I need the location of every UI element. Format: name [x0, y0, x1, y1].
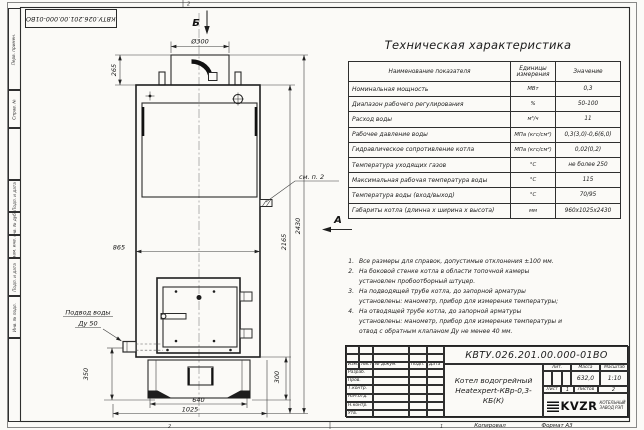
margin-field-empty-1	[8, 128, 21, 180]
drawing-sheet: 2 2 1 Б Ø300 265	[0, 0, 644, 430]
company-name: КОТЕЛЬНЫЙ ЗАВОД РЭП	[600, 401, 626, 411]
dim-text-chimney-dia: Ø300	[190, 38, 209, 46]
flue-elbow	[192, 62, 211, 79]
dim-body-width: 865	[113, 244, 260, 252]
furnace-door	[157, 278, 252, 353]
table-row: Максимальная рабочая температура воды°С1…	[349, 173, 621, 188]
spec-table: Наименование показателя Единицы измерени…	[348, 61, 621, 219]
list-item: 4.На отводящей трубе котла, до запорной …	[344, 307, 572, 337]
notes-list: 1.Все размеры для справок, допустимые от…	[344, 257, 572, 337]
sig-label-nkontr: Н.контр.	[346, 402, 373, 410]
sheets-value: 2	[598, 386, 629, 393]
dim-text-2430: 2430	[294, 218, 302, 235]
margin-field-inv-dubl: Инв. № дубл.	[8, 212, 21, 235]
lifting-lug-right	[235, 72, 241, 85]
dim-chimney-diameter: Ø300	[171, 38, 229, 54]
dim-base-height: 300	[252, 357, 291, 400]
foot-left	[148, 391, 172, 399]
view-label-b: Б	[192, 18, 200, 29]
list-item: 1.Все размеры для справок, допустимые от…	[344, 257, 572, 267]
top-stamp-box: КВТУ.026.201.00.000-01ВО	[25, 9, 117, 28]
table-row: Расход водым³/ч11	[349, 112, 621, 127]
table-row: Номинальная мощностьМВт0,3	[349, 82, 621, 97]
sig-label-nachotd: Нач.отд.	[346, 394, 373, 402]
chimney	[171, 55, 229, 85]
dim-overall-width: 1025	[113, 360, 267, 418]
margin-field-perv-primen: Перв. примен.	[8, 8, 21, 90]
dim-text-640: 640	[192, 396, 204, 404]
table-row: Диапазон рабочего регулирования%50-100	[349, 97, 621, 112]
list-item: 3.На подводящей трубе котла, до запорной…	[344, 287, 572, 307]
note-reference-label: см. п. 2	[299, 173, 324, 181]
spec-header-row: Наименование показателя Единицы измерени…	[349, 62, 621, 82]
table-row: Гидравлическое сопротивление котлаМПа (к…	[349, 142, 621, 157]
table-row: Рабочее давление водыМПа (кгс/см²)0,3(3,…	[349, 127, 621, 142]
table-row: Температура уходящих газов°Сне более 250	[349, 157, 621, 172]
foot-right	[227, 391, 251, 399]
boiler-body	[136, 72, 260, 357]
sig-label-prov: Пров.	[346, 377, 373, 385]
inlet-label-line2: Ду 50	[77, 320, 97, 328]
sig-label-tkontr: Т.контр.	[346, 385, 373, 393]
top-stamp-number: КВТУ.026.201.00.000-01ВО	[26, 15, 115, 23]
margin-field-vzam-inv: Взам. инв. №	[8, 235, 21, 258]
sig-label-utv: Утв.	[346, 410, 373, 418]
inlet-label-line1: Подвод воды	[65, 309, 110, 317]
dim-text-1025: 1025	[182, 406, 199, 414]
margin-field-podp-data-1: Подп. и дата	[8, 180, 21, 212]
spec-header-value: Значение	[556, 62, 621, 82]
door-hinge-bottom	[240, 329, 252, 338]
rev-header-izm: Изм.	[346, 362, 359, 369]
rev-header-list: Лист	[359, 362, 373, 369]
zone-number-bottom-right: 1	[440, 424, 443, 430]
spec-header-name: Наименование показателя	[349, 62, 511, 82]
dim-text-265: 265	[110, 64, 118, 76]
dim-text-2165: 2165	[280, 234, 288, 251]
lifting-lug-left	[159, 72, 165, 85]
footer-copied-label: Копировал	[460, 422, 520, 430]
table-row: Габариты котла (длинна х ширина х высота…	[349, 203, 621, 218]
sheets-label: Листов	[574, 386, 598, 393]
dim-chimney-height: 265	[110, 55, 171, 85]
sheet-value: 1	[561, 386, 574, 393]
spec-table-title: Техническая характеристика	[348, 38, 608, 52]
lit-label: Лит.	[543, 364, 571, 371]
door-peephole	[197, 295, 202, 300]
product-name: Котел водогрейный Heatexpert-КВр-0,3- КБ…	[444, 364, 543, 418]
kvzr-logo-icon	[547, 400, 559, 412]
rev-header-podp: Подп.	[409, 362, 427, 369]
zone-number-bottom-left: 2	[168, 424, 171, 430]
dim-body-height: 2165	[260, 85, 295, 414]
zone-number-top: 2	[187, 2, 190, 8]
kvzr-logo-text: KVZR	[561, 399, 598, 413]
dim-text-300: 300	[273, 371, 281, 383]
dim-text-865: 865	[113, 244, 125, 252]
sheet-label: Лист	[543, 386, 561, 393]
list-item: 2.На боковой стенке котла в области топо…	[344, 267, 572, 287]
doc-number: КВТУ.026.201.00.000-01ВО	[444, 346, 629, 364]
revision-table: Изм. Лист № докум. Подп. Дата Разраб. Пр…	[346, 346, 444, 418]
product-name-line1: Котел водогрейный	[455, 376, 533, 386]
rev-header-data: Дата	[427, 362, 444, 369]
dim-text-350: 350	[82, 368, 90, 380]
ash-opening	[188, 367, 213, 385]
upper-panel	[142, 103, 257, 197]
rev-header-dokum: № докум.	[373, 362, 409, 369]
margin-field-empty-2	[8, 338, 21, 422]
table-row: Температура воды (вход/выход)°С70/95	[349, 188, 621, 203]
door-hinge-top	[240, 292, 252, 301]
view-label-a: А	[333, 215, 342, 226]
mass-label: Масса	[571, 364, 600, 371]
scale-value: 1:10	[600, 371, 629, 386]
mass-value: 632,0	[571, 371, 600, 386]
sampling-fitting: см. п. 2	[260, 173, 339, 207]
view-marker-top: Б	[192, 11, 210, 35]
water-inlet: Подвод воды Ду 50	[63, 309, 163, 353]
title-block: Изм. Лист № докум. Подп. Дата Разраб. Пр…	[345, 345, 628, 417]
spec-header-units: Единицы измерения	[511, 62, 556, 82]
footer-format-label: Формат А3	[527, 422, 587, 430]
sig-label-razrab: Разраб.	[346, 369, 373, 377]
product-name-line2: Heatexpert-КВр-0,3- КБ(К)	[445, 386, 542, 406]
scale-label: Масштаб	[600, 364, 629, 371]
top-point-mark	[149, 95, 152, 98]
margin-field-sprav-no: Справ. №	[8, 90, 21, 128]
margin-field-inv-podl: Инв. № подл.	[8, 296, 21, 338]
margin-field-podp-data-2: Подп. и дата	[8, 258, 21, 296]
company-cell: KVZR КОТЕЛЬНЫЙ ЗАВОД РЭП	[543, 393, 629, 418]
dim-inlet-height: 350	[82, 348, 155, 400]
